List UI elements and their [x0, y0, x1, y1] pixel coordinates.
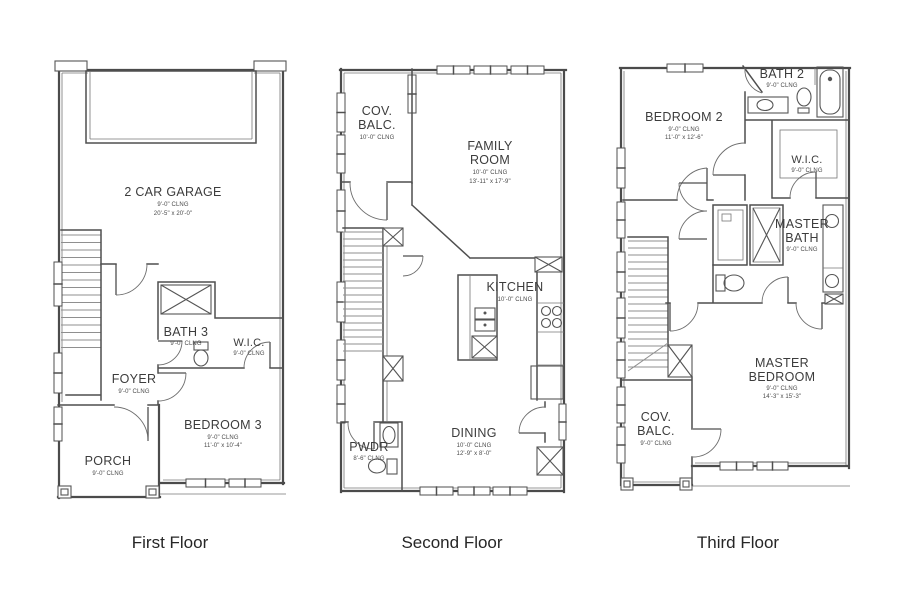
cov-balc-clng: 9'-0" CLNG — [640, 441, 672, 447]
garage-door-bay — [86, 71, 256, 143]
door-wic — [790, 172, 816, 198]
family-name2: ROOM — [470, 153, 510, 167]
room-label-cov-balc: COV. BALC. 10'-0" CLNG — [358, 104, 396, 141]
wic-clng: 9'-0" CLNG — [791, 168, 823, 174]
dining-clng: 10'-0" CLNG — [457, 443, 492, 449]
first-floor-caption: First Floor — [90, 533, 250, 553]
room-label-wic: W.I.C. 9'-0" CLNG — [791, 154, 823, 174]
bath2-name: BATH 2 — [760, 67, 805, 81]
corner-post — [537, 447, 563, 475]
door-masterbath-bedroom — [796, 303, 822, 329]
tub-icon — [817, 67, 843, 117]
room-label-bath3: BATH 3 9'-0" CLNG — [164, 325, 209, 347]
front-door — [114, 407, 148, 441]
stair-post — [383, 228, 403, 381]
master-bath-clng: 9'-0" CLNG — [786, 247, 818, 253]
bedroom2-dims: 11'-0" x 12'-6" — [665, 135, 703, 141]
room-label-wic: W.I.C. 9'-0" CLNG — [233, 337, 265, 357]
family-clng: 10'-0" CLNG — [473, 170, 508, 176]
bedroom2-clng: 9'-0" CLNG — [668, 127, 700, 133]
room-label-kitchen: KITCHEN 10'-0" CLNG — [487, 280, 544, 303]
toilet-icon — [797, 88, 811, 113]
door-garage-to-foyer — [116, 264, 147, 295]
sink-icon — [748, 97, 788, 113]
stair-post — [668, 345, 692, 377]
garage-clng: 9'-0" CLNG — [157, 202, 189, 208]
cov-balc-name1: COV. — [641, 410, 672, 424]
kitchen-name: KITCHEN — [487, 280, 544, 294]
bedroom2-name: BEDROOM 2 — [645, 110, 723, 124]
room-label-foyer: FOYER 9'-0" CLNG — [112, 372, 157, 395]
bath3-clng: 9'-0" CLNG — [170, 341, 202, 347]
second-floor-plan: COV. BALC. 10'-0" CLNG FAMILY ROOM 10'-0… — [330, 55, 575, 510]
stairs — [61, 230, 101, 400]
bedroom3-dims: 11'-0" x 10'-4" — [204, 443, 242, 449]
wall-pilaster — [55, 61, 87, 71]
room-label-family: FAMILY ROOM 10'-0" CLNG 13'-11" x 17'-9" — [467, 139, 513, 185]
door-toilet-room — [762, 277, 788, 303]
master-bedroom-name1: MASTER — [755, 356, 809, 370]
double-doors-closet — [679, 183, 707, 239]
door-stair-hall — [403, 256, 423, 276]
kitchen-clng: 10'-0" CLNG — [498, 297, 533, 303]
door-balcony — [693, 429, 721, 457]
garage-name: 2 CAR GARAGE — [124, 185, 221, 199]
cov-balc-name2: BALC. — [637, 424, 675, 438]
cov-balc-name2: BALC. — [358, 118, 396, 132]
wic-clng: 9'-0" CLNG — [233, 351, 265, 357]
master-bedroom-name2: BEDROOM — [749, 370, 816, 384]
second-floor-caption: Second Floor — [372, 533, 532, 553]
room-label-bedroom3: BEDROOM 3 9'-0" CLNG 11'-0" x 10'-4" — [184, 418, 262, 449]
laundry-closet — [713, 205, 747, 265]
pwdr-name: PWDR — [349, 440, 388, 454]
master-bedroom-clng: 9'-0" CLNG — [766, 386, 798, 392]
bedroom3-clng: 9'-0" CLNG — [207, 435, 239, 441]
room-label-pwdr: PWDR 8'-6" CLNG — [349, 440, 388, 462]
toilet-icon — [716, 275, 744, 291]
door-hall-master — [670, 303, 698, 331]
room-label-cov-balc: COV. BALC. 9'-0" CLNG — [637, 410, 675, 447]
bath3-name: BATH 3 — [164, 325, 209, 339]
shower-icon — [750, 205, 783, 265]
door-bedroom2-side — [713, 143, 745, 175]
porch-name: PORCH — [85, 454, 132, 468]
wic-name: W.I.C. — [791, 154, 822, 166]
cov-balc-name1: COV. — [362, 104, 393, 118]
wall-pilaster — [254, 61, 286, 71]
door-balcony — [350, 183, 387, 220]
pwdr-clng: 8'-6" CLNG — [353, 456, 385, 462]
master-bedroom-dims: 14'-3" x 15'-3" — [763, 394, 801, 400]
room-label-porch: PORCH 9'-0" CLNG — [85, 454, 132, 477]
room-label-dining: DINING 10'-0" CLNG 12'-9" x 8'-0" — [451, 426, 497, 457]
stairs — [343, 232, 383, 351]
family-dims: 13'-11" x 17'-9" — [469, 179, 510, 185]
door-dining — [519, 407, 545, 433]
dining-dims: 12'-9" x 8'-0" — [457, 451, 492, 457]
stairs — [628, 237, 668, 371]
room-label-master-bedroom: MASTER BEDROOM 9'-0" CLNG 14'-3" x 15'-3… — [749, 356, 816, 400]
bath2-clng: 9'-0" CLNG — [766, 83, 798, 89]
room-label-garage: 2 CAR GARAGE 9'-0" CLNG 20'-5" x 20'-0" — [124, 185, 221, 217]
bedroom3-name: BEDROOM 3 — [184, 418, 262, 432]
third-floor-caption: Third Floor — [658, 533, 818, 553]
family-name1: FAMILY — [467, 139, 513, 153]
dining-name: DINING — [451, 426, 497, 440]
foyer-clng: 9'-0" CLNG — [118, 389, 150, 395]
floor-plan-sheet: 2 CAR GARAGE 9'-0" CLNG 20'-5" x 20'-0" … — [0, 0, 903, 600]
foyer-name: FOYER — [112, 372, 157, 386]
cooktop-icon — [542, 307, 562, 328]
door-bedroom3 — [158, 373, 186, 401]
tub-icon — [161, 285, 211, 314]
porch-clng: 9'-0" CLNG — [92, 471, 124, 477]
room-label-bath2: BATH 2 9'-0" CLNG — [760, 67, 805, 89]
first-floor-plan: 2 CAR GARAGE 9'-0" CLNG 20'-5" x 20'-0" … — [48, 55, 293, 510]
garage-dims: 20'-5" x 20'-0" — [154, 211, 192, 217]
wic-name: W.I.C. — [233, 337, 264, 349]
room-label-bedroom2: BEDROOM 2 9'-0" CLNG 11'-0" x 12'-6" — [645, 110, 723, 141]
cov-balc-clng: 10'-0" CLNG — [360, 135, 395, 141]
master-bath-name2: BATH — [785, 231, 819, 245]
master-bath-name1: MASTER — [775, 217, 829, 231]
kitchen-counter — [531, 257, 564, 400]
third-floor-plan: BATH 2 9'-0" CLNG BEDROOM 2 9'-0" CLNG 1… — [610, 55, 870, 510]
